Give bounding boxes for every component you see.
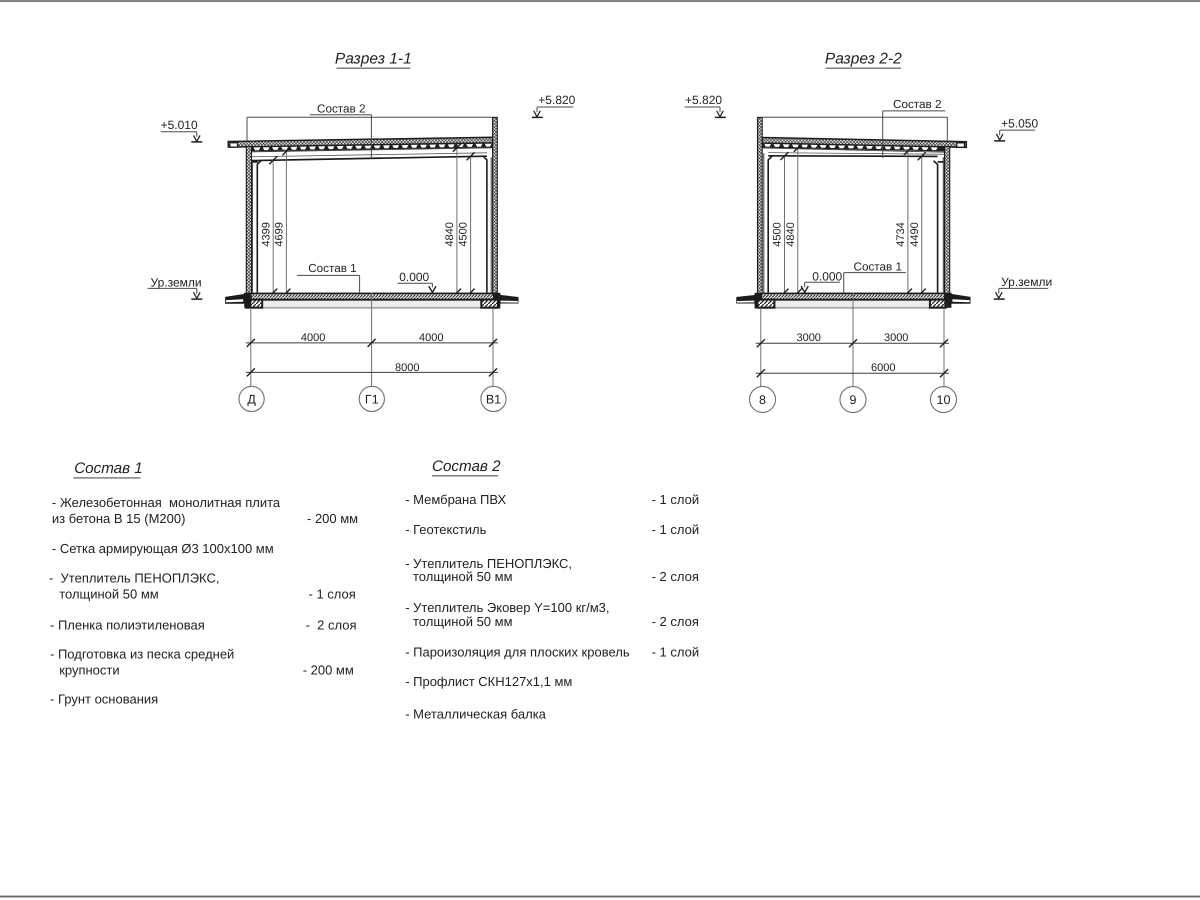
svg-text:8000: 8000 <box>395 362 419 374</box>
svg-text:4000: 4000 <box>419 332 443 344</box>
svg-text:В1: В1 <box>486 392 501 406</box>
svg-text:4734: 4734 <box>895 222 907 246</box>
svg-text:4699: 4699 <box>274 222 286 246</box>
svg-text:толщиной 50 мм: толщиной 50 мм <box>413 569 513 584</box>
svg-text:Д: Д <box>247 392 256 406</box>
svg-text:8: 8 <box>759 393 766 407</box>
svg-text:Состав 1: Состав 1 <box>854 260 902 273</box>
svg-text:- Профлист СКН127х1,1 мм: - Профлист СКН127х1,1 мм <box>405 674 572 689</box>
svg-text:- Пленка полиэтиленовая: - Пленка полиэтиленовая <box>50 617 205 632</box>
svg-text:Состав 1: Состав 1 <box>308 262 356 275</box>
svg-text:крупности: крупности <box>59 663 119 678</box>
svg-text:- 1 слой: - 1 слой <box>652 645 700 660</box>
svg-text:из бетона В 15 (М200): из бетона В 15 (М200) <box>52 511 186 526</box>
svg-text:толщиной 50 мм: толщиной 50 мм <box>59 587 159 602</box>
svg-text:4490: 4490 <box>909 222 921 246</box>
svg-text:4840: 4840 <box>444 222 456 246</box>
svg-text:0.000: 0.000 <box>399 270 429 284</box>
svg-text:- 2 слоя: - 2 слоя <box>652 569 699 584</box>
svg-text:- Сетка армирующая Ø3 100х100: - Сетка армирующая Ø3 100х100 мм <box>52 541 274 556</box>
svg-text:4840: 4840 <box>785 222 797 246</box>
svg-text:Состав 2: Состав 2 <box>893 98 941 111</box>
svg-text:Ур.земли: Ур.земли <box>151 275 202 289</box>
svg-text:толщиной 50 мм: толщиной 50 мм <box>413 614 513 629</box>
svg-text:Г1: Г1 <box>365 392 379 406</box>
svg-text:- Грунт основания: - Грунт основания <box>50 692 158 707</box>
svg-text:- Пароизоляция для плоских кро: - Пароизоляция для плоских кровель <box>405 645 630 660</box>
svg-text:Разрез 2-2: Разрез 2-2 <box>825 51 902 68</box>
svg-text:10: 10 <box>937 393 951 407</box>
svg-text:- Подготовка из песка средней: - Подготовка из песка средней <box>50 647 234 662</box>
svg-text:9: 9 <box>850 393 857 407</box>
svg-text:- Мембрана ПВХ: - Мембрана ПВХ <box>405 492 506 507</box>
svg-text:Состав 2: Состав 2 <box>432 458 501 475</box>
svg-text:6000: 6000 <box>871 362 895 374</box>
svg-text:- 200 мм: - 200 мм <box>307 511 358 526</box>
svg-text:- 1 слоя: - 1 слоя <box>309 587 356 602</box>
svg-text:- 1 слой: - 1 слой <box>652 522 700 537</box>
svg-text:- Геотекстиль: - Геотекстиль <box>405 522 486 537</box>
svg-text:0.000: 0.000 <box>812 269 842 283</box>
svg-text:- Утеплитель ПЕНОПЛЭКС,: - Утеплитель ПЕНОПЛЭКС, <box>49 571 219 586</box>
svg-text:Ур.земли: Ур.земли <box>1001 275 1052 289</box>
svg-text:- 200 мм: - 200 мм <box>303 663 354 678</box>
svg-text:+5.050: +5.050 <box>1001 116 1038 130</box>
svg-text:- 1 слой: - 1 слой <box>652 492 700 507</box>
svg-text:- Металлическая балка: - Металлическая балка <box>405 707 546 722</box>
svg-text:Разрез 1-1: Разрез 1-1 <box>335 51 412 68</box>
svg-text:- 2 слоя: - 2 слоя <box>652 614 699 629</box>
svg-text:+5.820: +5.820 <box>685 93 722 107</box>
svg-text:- 2 слоя: - 2 слоя <box>306 617 357 632</box>
svg-text:Состав 1: Состав 1 <box>74 460 143 477</box>
svg-text:4000: 4000 <box>301 332 325 344</box>
svg-text:3000: 3000 <box>884 332 908 344</box>
svg-text:+5.820: +5.820 <box>538 93 575 107</box>
svg-text:3000: 3000 <box>796 332 820 344</box>
svg-text:+5.010: +5.010 <box>161 118 198 132</box>
svg-text:- Железобетонная монолитная п: - Железобетонная монолитная плита <box>52 495 281 510</box>
svg-text:Состав 2: Состав 2 <box>317 103 365 116</box>
svg-text:4500: 4500 <box>772 222 784 246</box>
svg-text:4500: 4500 <box>458 222 470 246</box>
svg-text:4399: 4399 <box>260 222 272 246</box>
